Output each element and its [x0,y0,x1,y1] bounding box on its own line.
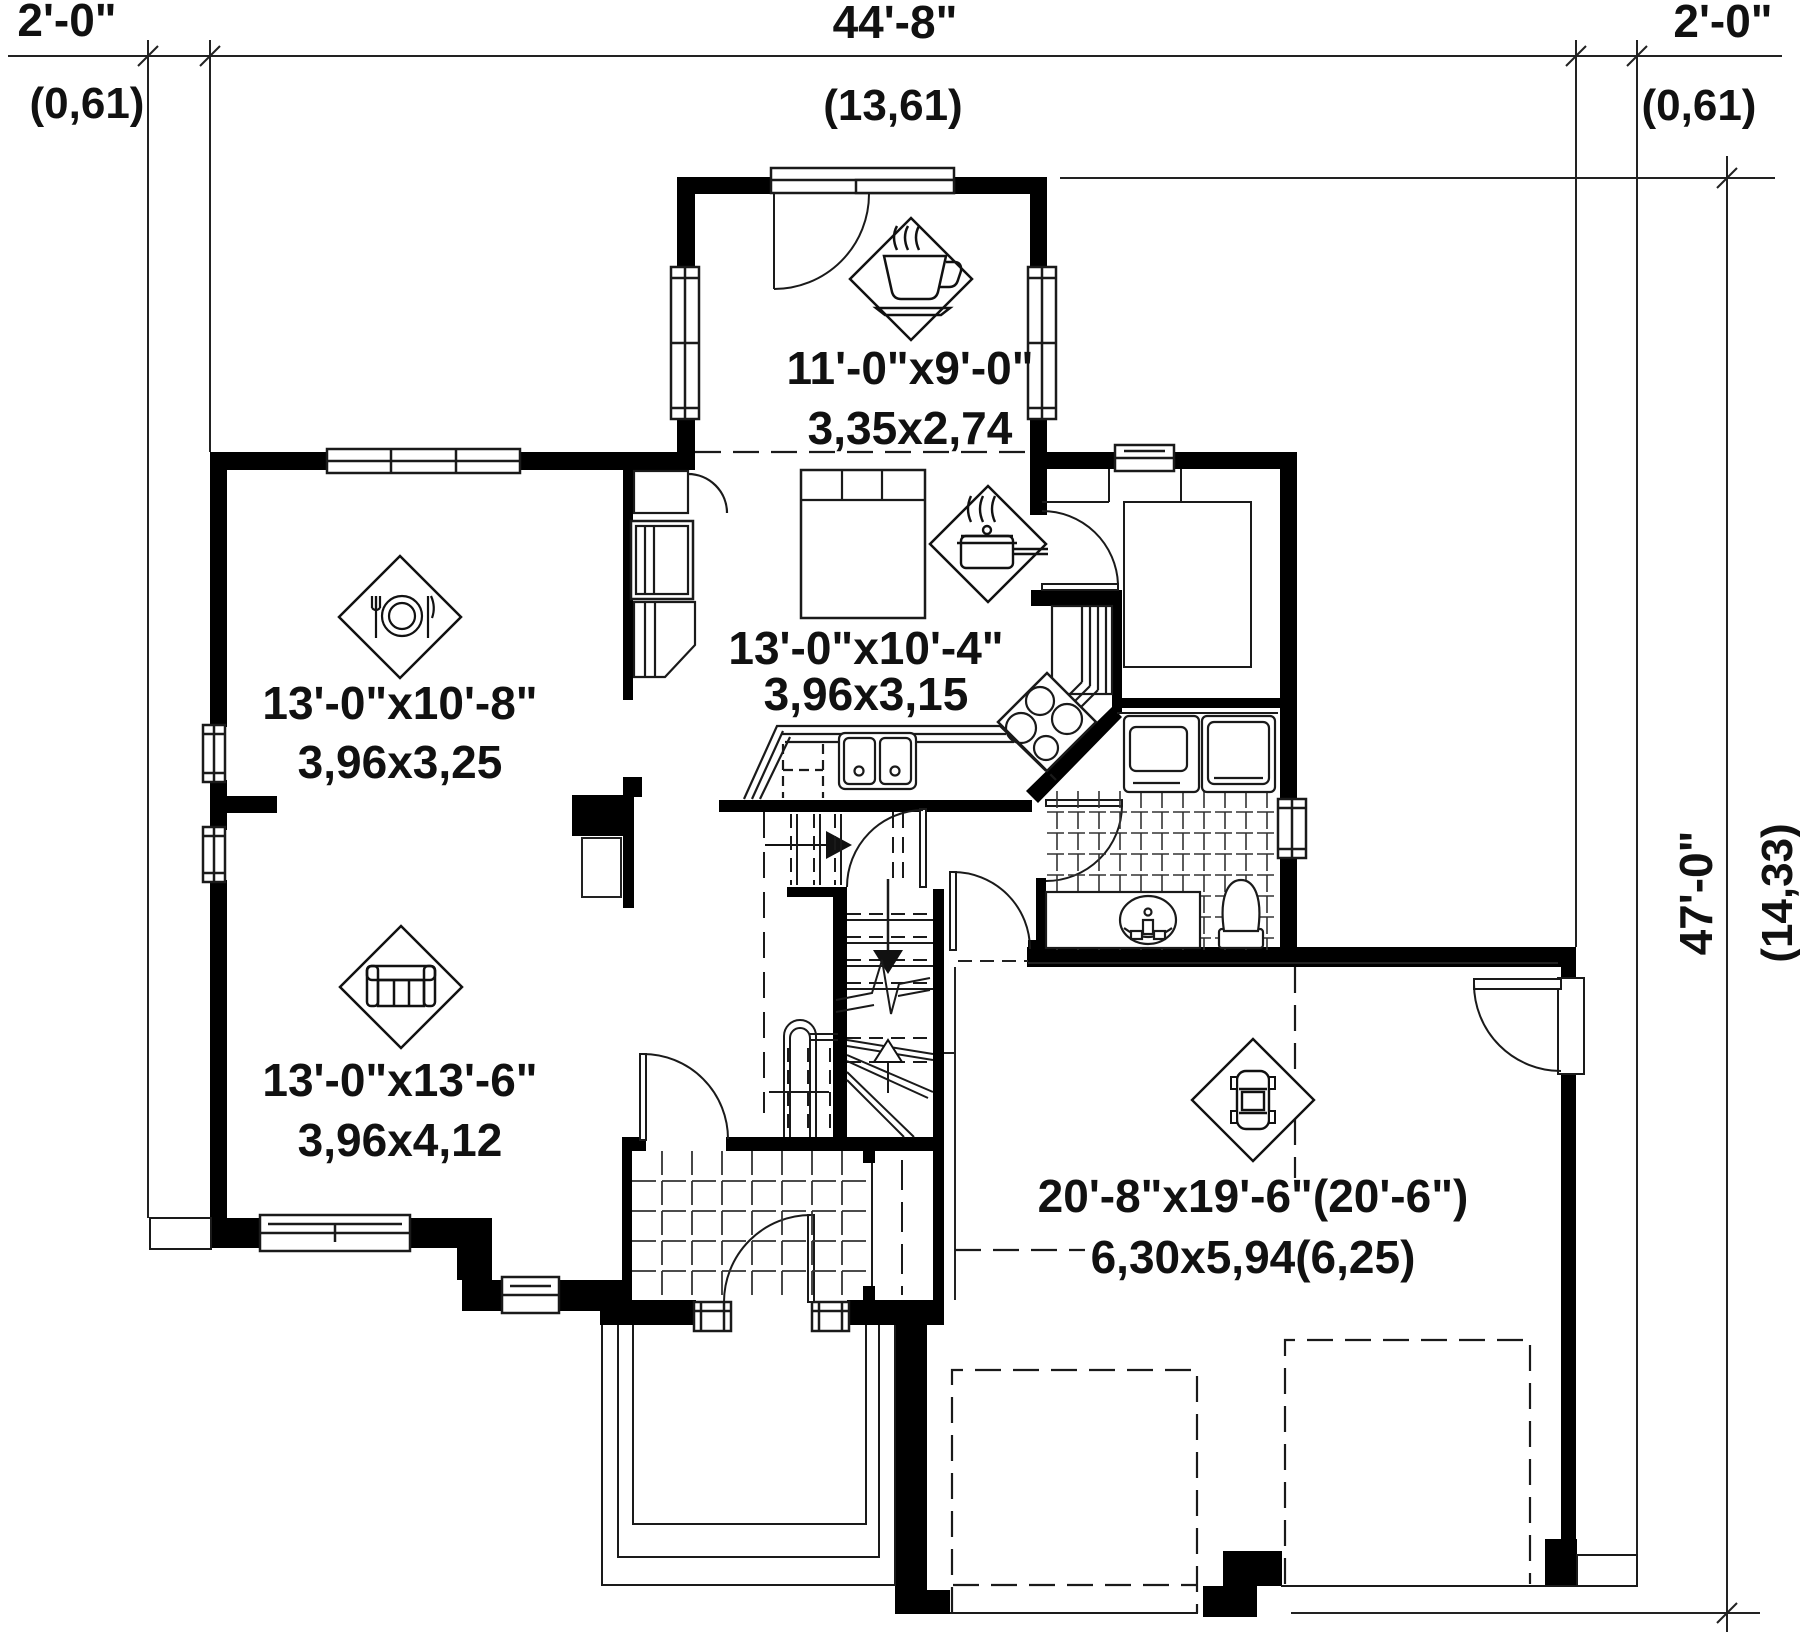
svg-text:2'-0": 2'-0" [1673,0,1772,47]
svg-text:13'-0"x10'-4": 13'-0"x10'-4" [728,622,1003,674]
svg-text:(13,61): (13,61) [823,81,962,130]
svg-text:20'-8"x19'-6"(20'-6"): 20'-8"x19'-6"(20'-6") [1038,1170,1469,1222]
svg-text:3,96x3,25: 3,96x3,25 [298,736,503,788]
svg-text:(0,61): (0,61) [1642,81,1757,130]
svg-text:47'-0": 47'-0" [1670,831,1722,956]
svg-text:3,96x4,12: 3,96x4,12 [298,1114,503,1166]
svg-text:3,35x2,74: 3,35x2,74 [808,402,1013,454]
svg-text:(14,33): (14,33) [1753,823,1800,962]
svg-text:44'-8": 44'-8" [833,0,958,48]
svg-text:11'-0"x9'-0": 11'-0"x9'-0" [786,342,1033,394]
svg-text:2'-0": 2'-0" [17,0,116,46]
svg-text:13'-0"x10'-8": 13'-0"x10'-8" [262,677,537,729]
svg-text:6,30x5,94(6,25): 6,30x5,94(6,25) [1091,1231,1416,1283]
svg-text:3,96x3,15: 3,96x3,15 [764,668,969,720]
svg-text:(0,61): (0,61) [30,79,145,128]
svg-text:13'-0"x13'-6": 13'-0"x13'-6" [262,1054,537,1106]
